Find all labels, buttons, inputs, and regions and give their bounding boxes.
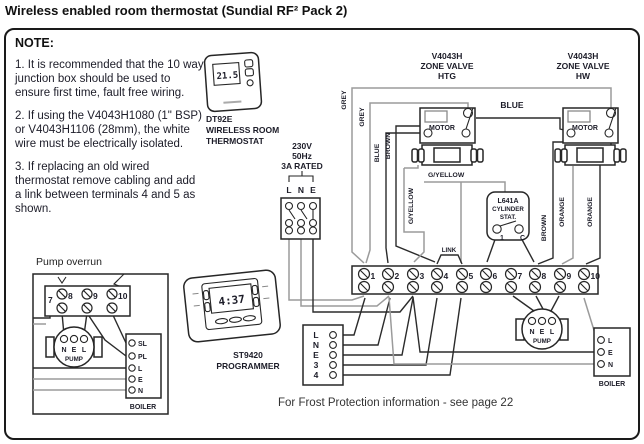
programmer-display-value: 4:37 (218, 293, 246, 309)
boiler-terminal-n: N (608, 362, 613, 369)
label-grey-a: GREY (341, 90, 348, 110)
overrun-boiler-pl: PL (138, 354, 148, 361)
stat-name-1: L641A (497, 198, 518, 205)
wire-link (437, 255, 462, 264)
valve-hw-name-2: ZONE VALVE (556, 61, 609, 71)
label-orange-b: ORANGE (587, 197, 594, 227)
thermostat-label: DT92E WIRELESS ROOM THERMOSTAT (206, 114, 279, 146)
overrun-boiler-l: L (138, 366, 143, 373)
label-gyellow-h: G/YELLOW (428, 172, 465, 179)
supply-rating-3: 3A RATED (281, 161, 323, 171)
programmer-tick (194, 305, 200, 306)
valve-htg-body-center (434, 148, 460, 162)
boiler-terminal-e: E (608, 350, 613, 357)
label-orange-a: ORANGE (559, 197, 566, 227)
programmer-label-2: PROGRAMMER (216, 361, 279, 371)
label-brown-r: BROWN (541, 215, 548, 242)
valve-htg-nut (419, 149, 425, 162)
boiler-right: L E N BOILER (594, 328, 630, 388)
stat-name-2: CYLINDER (492, 206, 524, 213)
pump-label: PUMP (533, 338, 551, 345)
overrun-boiler-label: BOILER (130, 404, 156, 411)
programmer-tick (262, 286, 268, 287)
terminal-number: 6 (493, 271, 498, 281)
programmer-label-1: ST9420 (233, 350, 263, 360)
valve-hw-nut (562, 149, 568, 162)
terminal-number: 4 (444, 271, 449, 281)
valve-htg-nut (471, 149, 477, 162)
mains-supply: 230V 50Hz 3A RATED L N E (281, 141, 323, 239)
stat-terminal-1-label: 1 (500, 235, 504, 242)
overrun-pump-flange (46, 337, 54, 357)
valve-hw-name-3: HW (576, 71, 591, 81)
programmer-tick (193, 293, 199, 294)
boiler-terminal-l: L (608, 338, 613, 345)
terminal-number: 9 (567, 271, 572, 281)
valve-hw-motor-label: MOTOR (572, 125, 598, 132)
supply-bracket-bar (289, 176, 313, 182)
valve-htg-nut (478, 149, 484, 162)
terminal-number: 7 (518, 271, 523, 281)
label-blue-h: BLUE (500, 100, 523, 110)
supply-rating-1: 230V (292, 141, 312, 151)
overrun-boiler-sl: SL (138, 341, 148, 348)
programmer-terminal-block: L N E 3 4 (303, 325, 343, 385)
prog-terminal-n: N (313, 340, 319, 350)
terminal-number: 8 (68, 291, 73, 301)
wiring-diagram: 230V 50Hz 3A RATED L N E V4043H ZONE (0, 0, 644, 444)
valve-htg-name-1: V4043H (432, 51, 463, 61)
overrun-boiler-n: N (138, 388, 143, 395)
terminal-number: 2 (395, 271, 400, 281)
label-blue-v: BLUE (374, 143, 381, 162)
wire-gyellow-loop (404, 165, 418, 168)
wire-gyellow-b (424, 182, 505, 193)
terminal-number: 10 (118, 291, 128, 301)
label-brown-v: BROWN (385, 133, 392, 160)
supply-terminal-e: E (310, 185, 316, 195)
boiler-label: BOILER (599, 381, 625, 388)
thermostat-label-1: DT92E (206, 114, 233, 124)
valve-hw-nut (614, 149, 620, 162)
zone-valve-hw: V4043H ZONE VALVE HW MOTOR (555, 51, 626, 165)
stat-name-3: STAT. (500, 214, 517, 221)
valve-hw-motor-block (568, 111, 590, 122)
valve-hw-nut (555, 149, 561, 162)
overrun-pump-n: N (61, 347, 66, 354)
wire-pump-n (513, 296, 534, 311)
wire-pump-l (551, 296, 559, 311)
terminal-number: 10 (591, 271, 601, 281)
supply-rating-2: 50Hz (292, 151, 312, 161)
valve-hw-name-1: V4043H (568, 51, 599, 61)
overrun-boiler-e: E (138, 377, 143, 384)
valve-htg-motor-label: MOTOR (429, 125, 455, 132)
pump-right: N E L PUMP (516, 309, 568, 349)
overrun-pump-label: PUMP (65, 356, 83, 363)
thermostat-label-3: THERMOSTAT (206, 136, 265, 146)
terminal-number: 1 (371, 271, 376, 281)
pump-terminal-e: E (540, 329, 545, 336)
junction-box: 12345678910 (352, 266, 600, 294)
terminal-number: 5 (469, 271, 474, 281)
prog-terminal-l: L (313, 330, 318, 340)
label-gyellow-v: G/YELLOW (408, 187, 415, 224)
valve-htg-name-3: HTG (438, 71, 456, 81)
prog-terminal-3: 3 (314, 360, 319, 370)
prog-terminal-e: E (313, 350, 319, 360)
terminal-number: 9 (93, 291, 98, 301)
pump-terminal-n: N (529, 329, 534, 336)
label-link: LINK (442, 247, 457, 254)
wire-pump-e (536, 296, 543, 309)
thermostat-display-value: 21.5 (216, 71, 238, 82)
valve-htg-motor-block (425, 111, 447, 122)
valve-hw-nut (621, 149, 627, 162)
programmer-tick (263, 298, 269, 299)
wiring-diagram-page: Wireless enabled room thermostat (Sundia… (0, 0, 644, 444)
terminal-number: 8 (542, 271, 547, 281)
overrun-pump-l: L (82, 347, 87, 354)
supply-terminal-n: N (298, 185, 304, 195)
thermostat-device: 21.5 (204, 52, 262, 112)
programmer-label: ST9420 PROGRAMMER (216, 350, 279, 371)
cylinder-stat: L641A CYLINDER STAT. 1 C (487, 192, 529, 242)
programmer-device: 4:37 (183, 269, 281, 342)
stat-terminal-c-label: C (520, 235, 525, 242)
pump-terminal-l: L (550, 329, 555, 336)
overrun-pump-e: E (72, 347, 77, 354)
terminal-number: 3 (420, 271, 425, 281)
pump-overrun-inset: 7 8910 N E L PUMP SL PL L E N (33, 274, 168, 414)
valve-hw-body-center (577, 148, 603, 162)
wire-boiler-e (413, 297, 597, 352)
overrun-pump-flange (94, 337, 102, 357)
wire-blue-hw (476, 118, 568, 131)
supply-terminal-l: L (286, 185, 291, 195)
programmer-block-box (303, 325, 343, 385)
label-grey-b: GREY (359, 107, 366, 127)
valve-htg-name-2: ZONE VALVE (420, 61, 473, 71)
overrun-terminal-7: 7 (48, 295, 53, 305)
thermostat-label-2: WIRELESS ROOM (206, 125, 279, 135)
zone-valve-htg: V4043H ZONE VALVE HTG MOTOR (412, 51, 483, 165)
prog-terminal-4: 4 (314, 370, 319, 380)
valve-htg-nut (412, 149, 418, 162)
